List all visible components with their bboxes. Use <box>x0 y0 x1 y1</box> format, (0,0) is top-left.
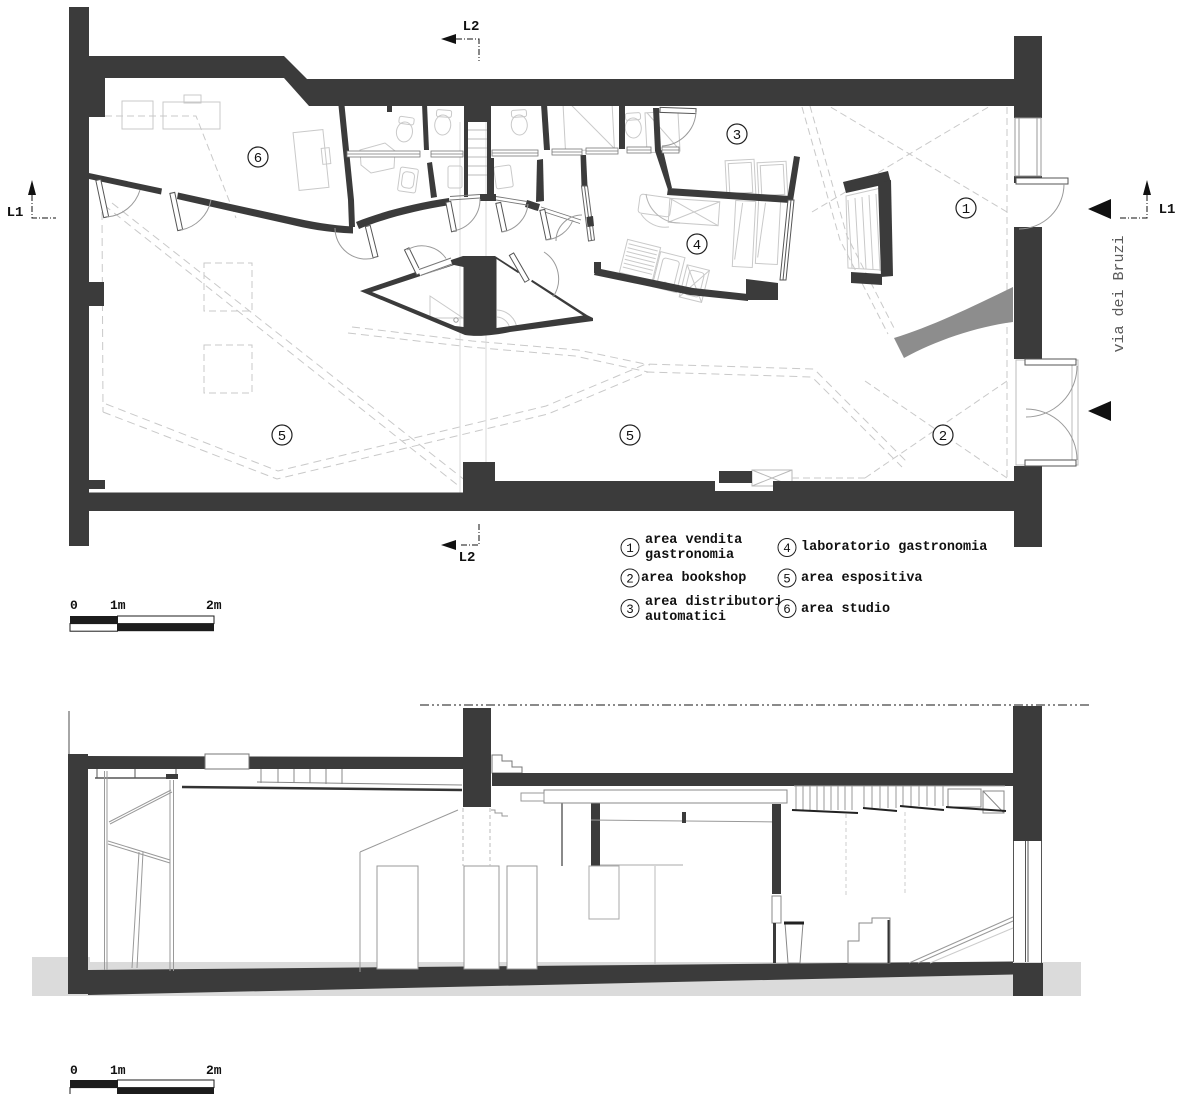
svg-text:L2: L2 <box>459 550 476 566</box>
svg-text:0: 0 <box>70 1063 78 1078</box>
svg-text:6: 6 <box>254 151 262 167</box>
svg-text:area vendita: area vendita <box>645 533 742 548</box>
svg-text:4: 4 <box>693 238 701 254</box>
svg-text:1m: 1m <box>110 1063 126 1078</box>
svg-text:3: 3 <box>626 603 634 617</box>
svg-text:area espositiva: area espositiva <box>801 571 923 586</box>
svg-text:2m: 2m <box>206 598 222 613</box>
svg-text:1m: 1m <box>110 598 126 613</box>
svg-text:L1: L1 <box>7 205 24 221</box>
svg-text:gastronomia: gastronomia <box>645 548 734 563</box>
svg-text:4: 4 <box>783 542 791 556</box>
svg-text:L1: L1 <box>1159 202 1176 218</box>
svg-text:area distributori: area distributori <box>645 595 783 610</box>
svg-text:1: 1 <box>626 542 634 556</box>
svg-text:5: 5 <box>626 429 634 445</box>
svg-text:1: 1 <box>962 202 970 218</box>
svg-text:2: 2 <box>626 573 634 587</box>
svg-text:area bookshop: area bookshop <box>641 571 746 586</box>
svg-text:5: 5 <box>278 429 286 445</box>
svg-text:laboratorio gastronomia: laboratorio gastronomia <box>801 540 987 555</box>
svg-text:3: 3 <box>733 128 741 144</box>
svg-text:2: 2 <box>939 429 947 445</box>
svg-text:automatici: automatici <box>645 610 726 625</box>
svg-text:0: 0 <box>70 598 78 613</box>
svg-text:L2: L2 <box>463 19 480 35</box>
svg-text:via dei Bruzi: via dei Bruzi <box>1111 235 1128 352</box>
svg-text:area studio: area studio <box>801 602 890 617</box>
svg-text:6: 6 <box>783 603 791 617</box>
svg-text:2m: 2m <box>206 1063 222 1078</box>
svg-text:5: 5 <box>783 573 791 587</box>
